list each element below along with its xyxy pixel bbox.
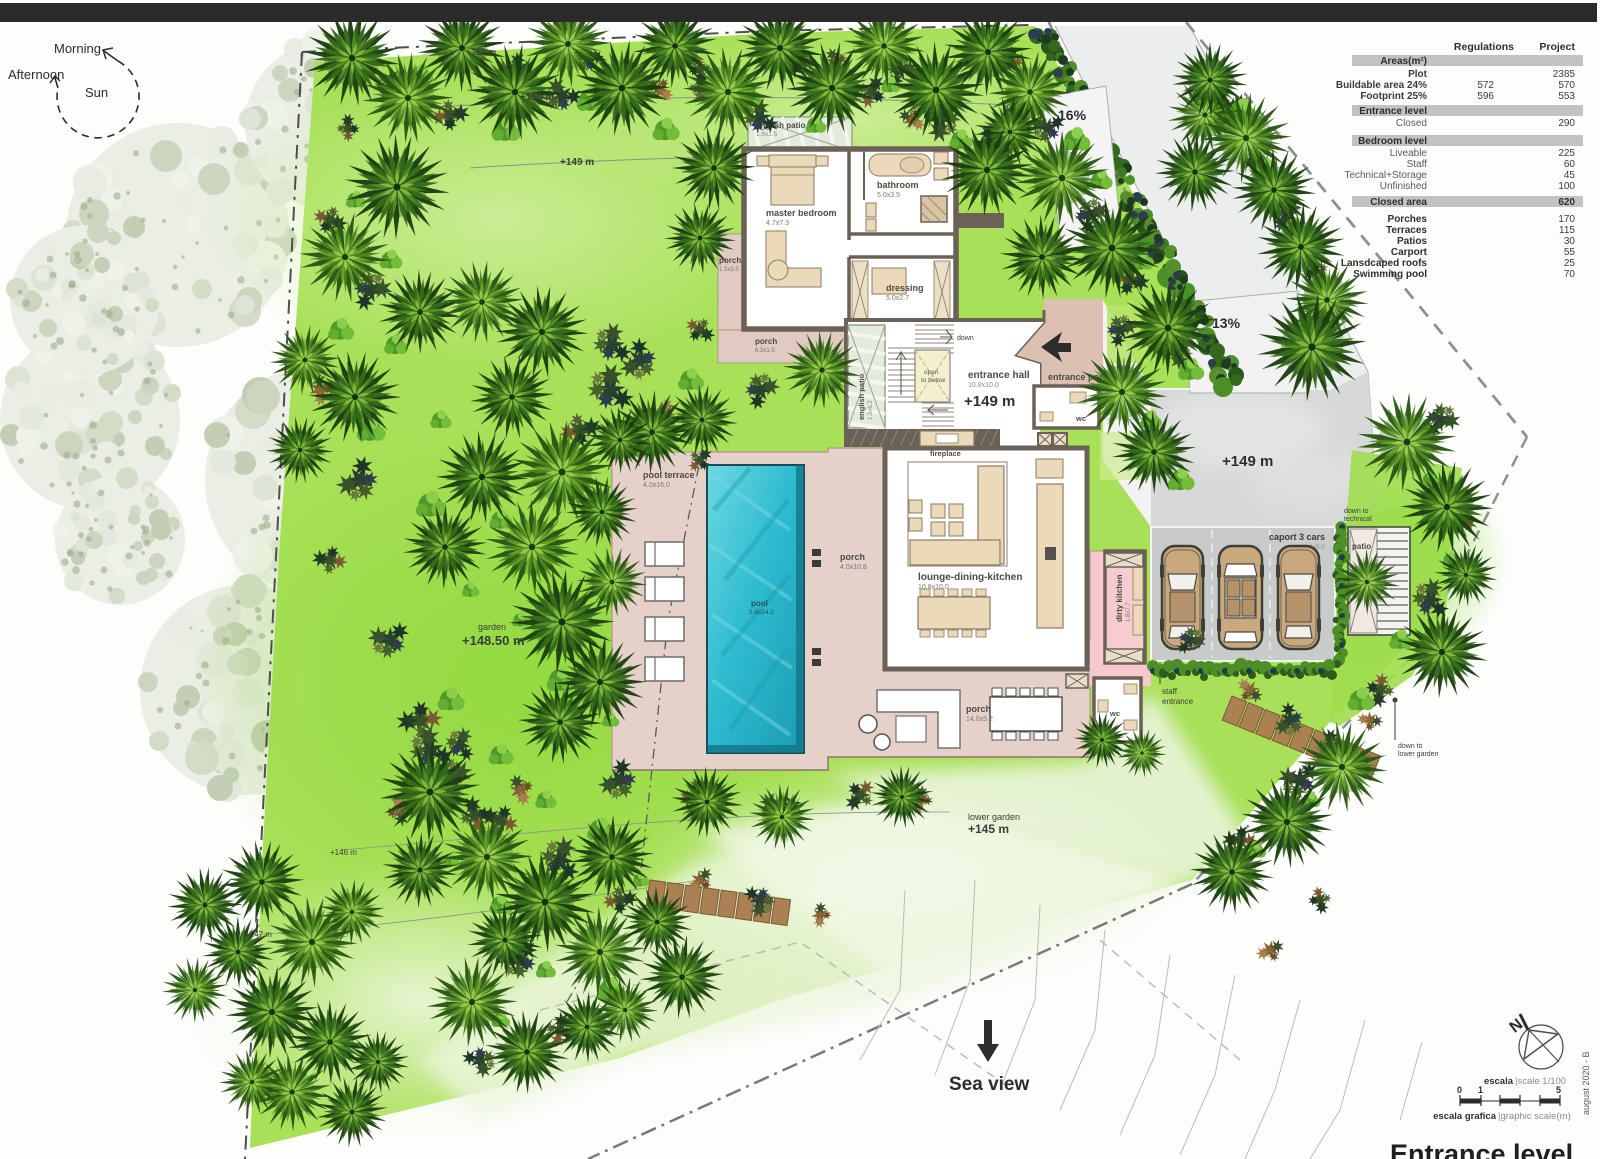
svg-text:escala: escala bbox=[1484, 1076, 1514, 1087]
svg-text:Sea view: Sea view bbox=[949, 1074, 1029, 1095]
svg-text:Sun: Sun bbox=[85, 85, 108, 100]
svg-text:porch: porch bbox=[966, 704, 991, 714]
svg-text:Patios: Patios bbox=[1397, 236, 1427, 247]
svg-text:Lansdcaped roofs: Lansdcaped roofs bbox=[1341, 258, 1428, 269]
svg-text:Technical+Storage: Technical+Storage bbox=[1344, 170, 1427, 181]
svg-text:10.8x10.0: 10.8x10.0 bbox=[968, 382, 999, 389]
svg-text:Swimming pool: Swimming pool bbox=[1353, 269, 1427, 280]
svg-text:+145 m: +145 m bbox=[968, 822, 1009, 836]
svg-text:open: open bbox=[924, 369, 939, 376]
svg-text:Footprint 25%: Footprint 25% bbox=[1360, 91, 1427, 102]
svg-text:572: 572 bbox=[1477, 80, 1494, 91]
svg-text:to below: to below bbox=[921, 377, 946, 384]
svg-text:290: 290 bbox=[1558, 118, 1575, 129]
svg-text:1.5x3.5: 1.5x3.5 bbox=[719, 267, 739, 273]
svg-text:25: 25 bbox=[1564, 258, 1576, 269]
svg-text:technical: technical bbox=[1344, 516, 1372, 523]
svg-text:Plot: Plot bbox=[1408, 69, 1428, 80]
svg-text:dressing: dressing bbox=[886, 283, 924, 293]
svg-text:entrance: entrance bbox=[1162, 697, 1194, 706]
svg-text:patio: patio bbox=[1352, 542, 1371, 551]
svg-text:Areas(m²): Areas(m²) bbox=[1380, 56, 1427, 67]
svg-text:55: 55 bbox=[1564, 247, 1576, 258]
svg-text:Bedroom level: Bedroom level bbox=[1358, 136, 1427, 147]
svg-text:553: 553 bbox=[1558, 91, 1575, 102]
svg-text:Regulations: Regulations bbox=[1454, 41, 1514, 53]
svg-text:6.3x1.5: 6.3x1.5 bbox=[755, 348, 775, 354]
svg-text:lounge-dining-kitchen: lounge-dining-kitchen bbox=[918, 572, 1022, 583]
svg-text:Closed area: Closed area bbox=[1370, 197, 1427, 208]
svg-text:porch: porch bbox=[840, 552, 865, 562]
svg-text:+151 m: +151 m bbox=[466, 47, 496, 57]
svg-text:+148.50 m: +148.50 m bbox=[462, 633, 525, 648]
svg-text:1.5x6.2: 1.5x6.2 bbox=[868, 400, 874, 420]
svg-text:down to: down to bbox=[1398, 743, 1423, 750]
svg-text:+147 m: +147 m bbox=[245, 930, 272, 939]
svg-text:entrance hall: entrance hall bbox=[968, 370, 1030, 381]
svg-text:2385: 2385 bbox=[1553, 69, 1576, 80]
svg-text:escala grafica: escala grafica bbox=[1433, 1111, 1497, 1122]
svg-text:14.0x5.2: 14.0x5.2 bbox=[966, 716, 993, 723]
svg-text:+149 m: +149 m bbox=[964, 393, 1015, 410]
svg-text:5.0x3.5: 5.0x3.5 bbox=[877, 192, 900, 199]
svg-text:Afternoon: Afternoon bbox=[8, 67, 64, 82]
svg-text:45: 45 bbox=[1564, 170, 1576, 181]
svg-text:Liveable: Liveable bbox=[1390, 148, 1428, 159]
svg-text:dirty kitchen: dirty kitchen bbox=[1115, 574, 1124, 622]
svg-text:13%: 13% bbox=[1212, 315, 1241, 331]
svg-text:Entrance level: Entrance level bbox=[1390, 1139, 1573, 1159]
svg-text:garden: garden bbox=[478, 622, 506, 632]
svg-text:1.8x7.7: 1.8x7.7 bbox=[1126, 602, 1132, 622]
svg-text:16%: 16% bbox=[1058, 107, 1087, 123]
svg-text:wc: wc bbox=[1075, 414, 1086, 423]
svg-text:596: 596 bbox=[1477, 91, 1494, 102]
svg-text:Terraces: Terraces bbox=[1386, 225, 1427, 236]
svg-text:|graphic scale(m): |graphic scale(m) bbox=[1498, 1111, 1571, 1122]
svg-text:570: 570 bbox=[1558, 80, 1575, 91]
svg-text:master bedroom: master bedroom bbox=[766, 208, 837, 218]
svg-text:5.8x14.2: 5.8x14.2 bbox=[749, 609, 774, 616]
svg-text:5: 5 bbox=[1556, 1085, 1561, 1095]
svg-text:caport 3 cars: caport 3 cars bbox=[1269, 532, 1325, 542]
svg-text:august 2020 - B: august 2020 - B bbox=[1581, 1051, 1591, 1115]
svg-text:100: 100 bbox=[1558, 181, 1575, 192]
svg-text:30: 30 bbox=[1564, 236, 1576, 247]
svg-text:4.0x10.8: 4.0x10.8 bbox=[840, 564, 867, 571]
svg-text:170: 170 bbox=[1558, 214, 1575, 225]
svg-text:60: 60 bbox=[1564, 159, 1576, 170]
svg-text:staff: staff bbox=[1162, 687, 1178, 696]
svg-text:down: down bbox=[957, 335, 974, 342]
svg-text:+150 m: +150 m bbox=[520, 92, 554, 103]
svg-text:Staff: Staff bbox=[1407, 159, 1428, 170]
svg-text:620: 620 bbox=[1558, 197, 1575, 208]
svg-text:+149 m: +149 m bbox=[560, 157, 594, 168]
svg-text:+149 m: +149 m bbox=[1222, 453, 1273, 470]
svg-text:Porches: Porches bbox=[1388, 214, 1428, 225]
svg-text:wc: wc bbox=[1109, 709, 1120, 718]
svg-text:4.0x16.0: 4.0x16.0 bbox=[643, 482, 670, 489]
svg-text:down to: down to bbox=[1344, 508, 1369, 515]
svg-text:Carport: Carport bbox=[1391, 247, 1428, 258]
svg-text:Buildable area 24%: Buildable area 24% bbox=[1336, 80, 1427, 91]
svg-text:Morning: Morning bbox=[54, 41, 101, 56]
svg-text:Project: Project bbox=[1539, 41, 1575, 53]
svg-text:pool: pool bbox=[751, 599, 768, 608]
svg-text:+146 m: +146 m bbox=[330, 848, 357, 857]
svg-text:70: 70 bbox=[1564, 269, 1576, 280]
svg-text:225: 225 bbox=[1558, 148, 1575, 159]
svg-text:115: 115 bbox=[1559, 225, 1575, 236]
svg-text:1.6x1.5: 1.6x1.5 bbox=[756, 131, 778, 138]
svg-text:5.0x2.7: 5.0x2.7 bbox=[886, 295, 909, 302]
svg-text:lower garden: lower garden bbox=[1398, 751, 1439, 758]
svg-text:bathroom: bathroom bbox=[877, 180, 919, 190]
svg-text:1: 1 bbox=[1478, 1085, 1483, 1095]
svg-text:Unfinished: Unfinished bbox=[1380, 181, 1427, 192]
svg-text:Closed: Closed bbox=[1396, 118, 1427, 129]
svg-text:4.7x7.3: 4.7x7.3 bbox=[766, 220, 789, 227]
svg-text:english patio: english patio bbox=[857, 373, 866, 420]
svg-text:0: 0 bbox=[1457, 1085, 1462, 1095]
svg-text:Entrance level: Entrance level bbox=[1359, 106, 1427, 117]
svg-text:fireplace: fireplace bbox=[930, 449, 961, 458]
svg-text:lower garden: lower garden bbox=[968, 812, 1020, 822]
svg-text:porch: porch bbox=[755, 337, 777, 346]
